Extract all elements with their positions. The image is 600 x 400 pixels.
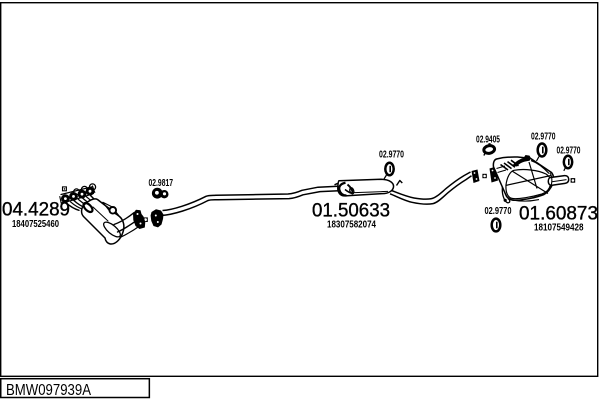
svg-text:18107549428: 18107549428 bbox=[534, 222, 584, 234]
svg-text:02.9770: 02.9770 bbox=[485, 206, 512, 217]
svg-text:02.9817: 02.9817 bbox=[149, 178, 174, 189]
svg-text:18407525460: 18407525460 bbox=[12, 218, 59, 230]
svg-text:02.9770: 02.9770 bbox=[557, 146, 581, 157]
svg-text:18307582074: 18307582074 bbox=[327, 219, 376, 231]
svg-text:02.9770: 02.9770 bbox=[531, 132, 556, 143]
svg-text:02.9405: 02.9405 bbox=[476, 135, 500, 146]
svg-text:BMW097939A: BMW097939A bbox=[6, 382, 91, 399]
svg-text:02.9770: 02.9770 bbox=[379, 150, 404, 161]
